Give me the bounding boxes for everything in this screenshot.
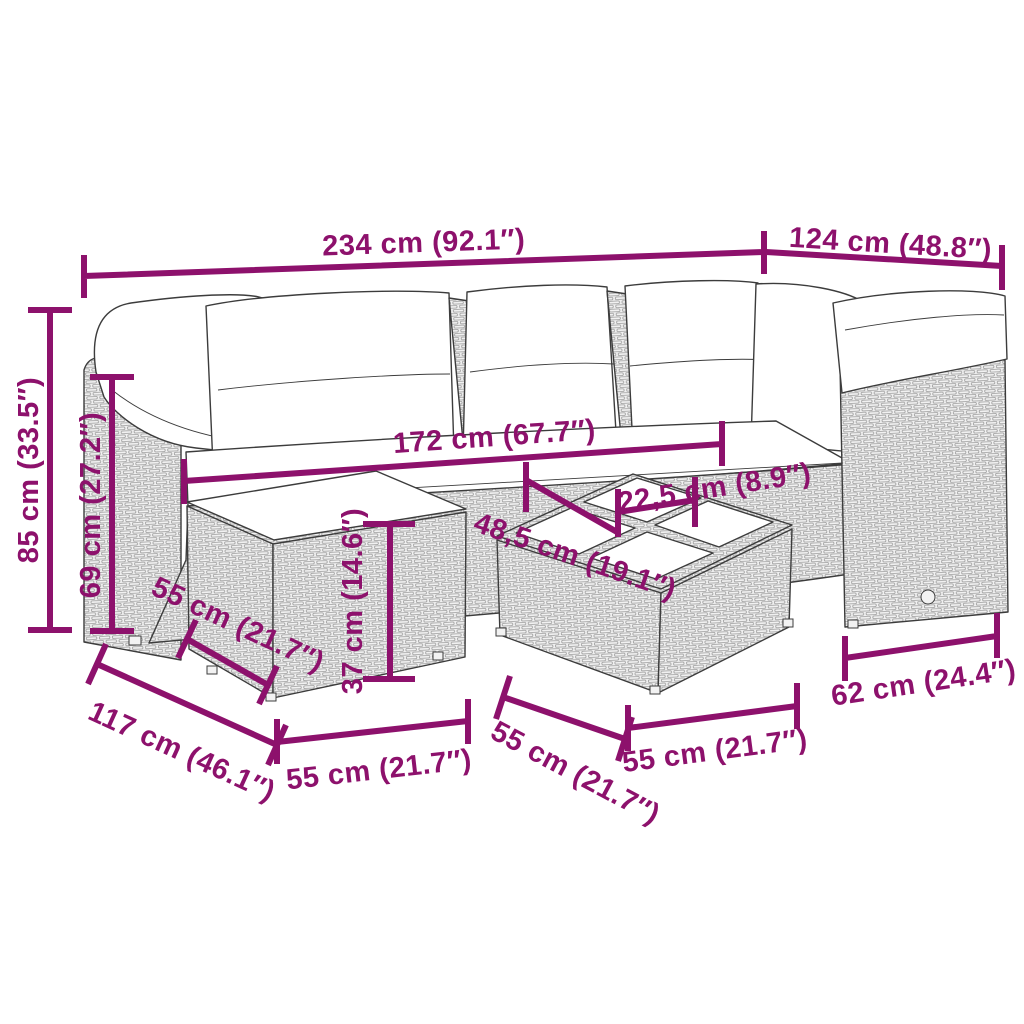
sofa-foot (129, 636, 141, 645)
footstool-foot (266, 693, 276, 701)
dim-right-side-width-label: 124 cm (48.8″) (788, 222, 993, 266)
dim-right-module-width-label: 62 cm (24.4″) (829, 653, 1018, 712)
dim-total-width-label: 234 cm (92.1″) (322, 223, 526, 262)
dim-footstool-width: 55 cm (21.7″) (277, 699, 473, 797)
footstool-foot (207, 666, 217, 674)
footstool-foot (433, 652, 443, 660)
right-side-panel (840, 355, 1008, 627)
garden-sofa-set-diagram: 234 cm (92.1″) 124 cm (48.8″) 85 cm (33.… (0, 0, 1024, 1024)
dim-corner-depth-label: 117 cm (46.1″) (83, 695, 280, 808)
sofa-foot (848, 620, 858, 628)
footstool (187, 471, 466, 701)
table-foot (650, 686, 660, 694)
table-foot (496, 628, 506, 636)
dim-table-width: 55 cm (21.7″) (620, 683, 809, 779)
table-foot (783, 619, 793, 627)
dim-total-height: 85 cm (33.5″) (13, 310, 72, 630)
dim-right-side-width: 124 cm (48.8″) (766, 222, 1002, 290)
dim-footstool-height-label: 37 cm (14.6″) (337, 508, 369, 694)
dim-footstool-width-label: 55 cm (21.7″) (285, 744, 474, 797)
dim-backrest-height-label: 69 cm (27.2″) (75, 412, 107, 598)
panel-hole (921, 590, 935, 604)
dim-table-width-label: 55 cm (21.7″) (620, 723, 809, 779)
dim-total-height-label: 85 cm (33.5″) (13, 377, 45, 563)
dimension-diagram-canvas: 234 cm (92.1″) 124 cm (48.8″) 85 cm (33.… (0, 0, 1024, 1024)
